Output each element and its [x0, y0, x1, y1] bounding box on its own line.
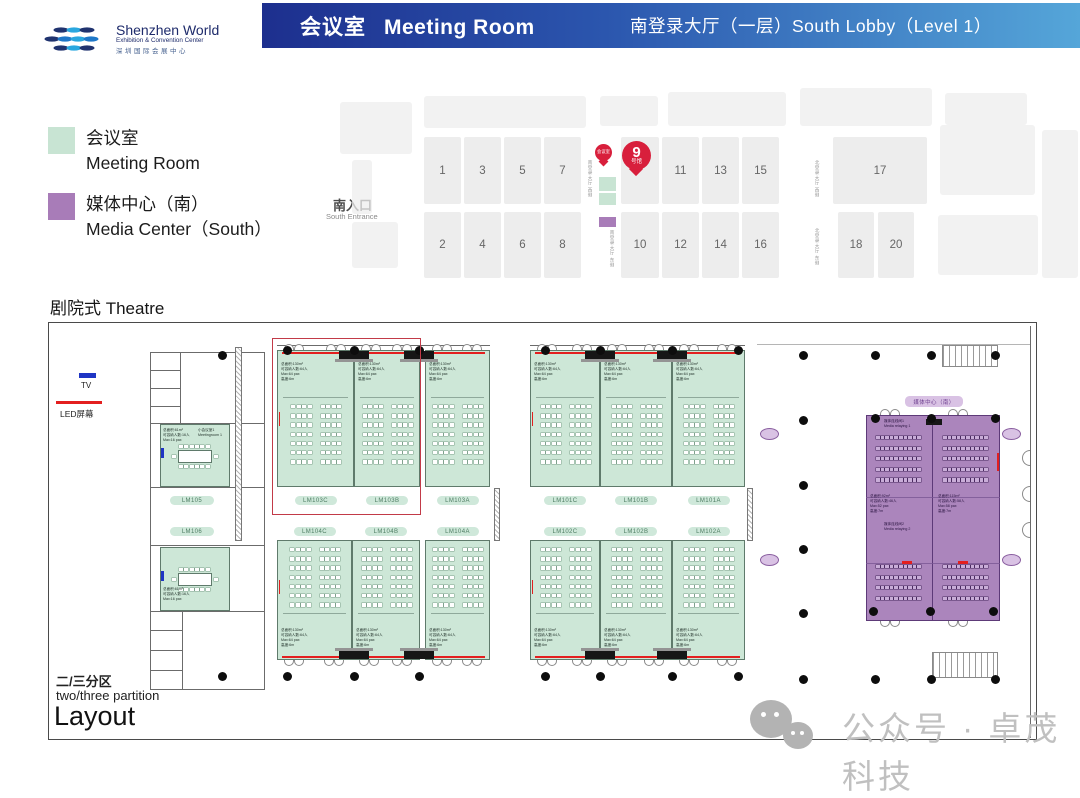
- seat: [961, 597, 965, 600]
- seat-row: [433, 566, 482, 570]
- seat: [433, 405, 437, 408]
- seat: [628, 451, 632, 454]
- column-dot: [927, 351, 936, 360]
- seat: [984, 586, 988, 589]
- seat-cluster: [362, 585, 384, 589]
- seat-cluster: [541, 576, 563, 580]
- seat-row: [876, 565, 922, 568]
- seat: [301, 603, 305, 606]
- seat-cluster: [684, 594, 706, 598]
- seat: [658, 423, 662, 426]
- seat-row: [433, 594, 482, 598]
- seat-cluster: [714, 460, 736, 464]
- seat-cluster: [714, 548, 736, 552]
- seat: [541, 414, 545, 417]
- seat-cluster: [684, 423, 706, 427]
- seat: [658, 460, 662, 463]
- tv-mark: [161, 571, 164, 581]
- seat: [725, 594, 729, 597]
- seat-cluster: [714, 603, 736, 607]
- seat-row: [541, 442, 590, 446]
- room-label-LM103A: LM103A: [437, 496, 479, 505]
- seat-row: [612, 405, 661, 409]
- seat: [690, 557, 694, 560]
- seat: [647, 594, 651, 597]
- seat: [552, 414, 556, 417]
- seat: [917, 447, 921, 450]
- seat: [433, 414, 437, 417]
- seat: [320, 603, 324, 606]
- column-dot: [991, 351, 1000, 360]
- seat: [881, 478, 885, 481]
- seat: [439, 433, 443, 436]
- seat: [433, 566, 437, 569]
- stairs: [932, 652, 998, 678]
- corridor-joint: [747, 488, 753, 541]
- seat-cluster: [290, 576, 312, 580]
- seat: [402, 566, 406, 569]
- seat: [690, 433, 694, 436]
- seat: [957, 478, 961, 481]
- seat-row: [290, 576, 339, 580]
- seat: [719, 460, 723, 463]
- seat: [881, 597, 885, 600]
- door-arc: [727, 660, 737, 666]
- seat: [541, 460, 545, 463]
- seat: [378, 566, 382, 569]
- seat: [296, 566, 300, 569]
- seat: [587, 460, 591, 463]
- seat-cluster: [612, 566, 634, 570]
- seat: [617, 433, 621, 436]
- seat-cluster: [570, 566, 592, 570]
- seat: [463, 423, 467, 426]
- seat: [652, 433, 656, 436]
- door-arc: [324, 660, 334, 666]
- door-arc: [402, 660, 412, 666]
- seat: [894, 436, 898, 439]
- seat: [468, 433, 472, 436]
- dimension-line: [606, 397, 666, 398]
- seat-cluster: [391, 557, 413, 561]
- seat: [984, 565, 988, 568]
- door-arc: [644, 344, 654, 350]
- seat: [557, 576, 561, 579]
- seat: [474, 576, 478, 579]
- seat: [474, 548, 478, 551]
- seat: [684, 557, 688, 560]
- seat: [623, 594, 627, 597]
- seat-row: [684, 423, 733, 427]
- wall: [150, 630, 182, 631]
- seat-row: [876, 576, 922, 579]
- seat: [320, 585, 324, 588]
- seat: [612, 548, 616, 551]
- seat: [913, 468, 917, 471]
- chair: [184, 568, 188, 571]
- seat: [552, 423, 556, 426]
- seat: [439, 423, 443, 426]
- seat: [623, 548, 627, 551]
- seat-row: [433, 585, 482, 589]
- column-dot: [871, 414, 880, 423]
- column-dot: [541, 346, 550, 355]
- seat: [623, 576, 627, 579]
- seat-cluster: [290, 594, 312, 598]
- seat: [587, 557, 591, 560]
- seat: [325, 548, 329, 551]
- seat-row: [684, 548, 733, 552]
- seat: [658, 451, 662, 454]
- media-spec-right: 总面积:115m²可容纳人数:58人Max:58 pax高度:7m: [938, 494, 965, 513]
- seat: [652, 442, 656, 445]
- seat: [331, 548, 335, 551]
- seat: [546, 423, 550, 426]
- seat-cluster: [612, 460, 634, 464]
- door-arc: [679, 344, 689, 350]
- seat: [468, 594, 472, 597]
- seat: [641, 414, 645, 417]
- seat: [984, 468, 988, 471]
- seat-row: [541, 594, 590, 598]
- seat-row: [612, 594, 661, 598]
- chair: [179, 568, 183, 571]
- seat: [444, 566, 448, 569]
- stage: [585, 651, 615, 659]
- seat-cluster: [570, 405, 592, 409]
- seat: [684, 585, 688, 588]
- seat: [899, 597, 903, 600]
- seat: [617, 414, 621, 417]
- seat: [961, 478, 965, 481]
- seat: [331, 557, 335, 560]
- seat: [576, 451, 580, 454]
- seat-cluster: [714, 576, 736, 580]
- seat-row: [684, 557, 733, 561]
- seat: [885, 478, 889, 481]
- seat: [684, 451, 688, 454]
- seat: [948, 597, 952, 600]
- seat-row: [612, 451, 661, 455]
- seat: [885, 586, 889, 589]
- seat: [397, 566, 401, 569]
- seat: [701, 433, 705, 436]
- seat: [378, 585, 382, 588]
- seat-row: [290, 603, 339, 607]
- seat-cluster: [714, 414, 736, 418]
- seat: [719, 603, 723, 606]
- seat: [479, 451, 483, 454]
- seat: [975, 478, 979, 481]
- seat: [876, 447, 880, 450]
- seat: [725, 423, 729, 426]
- seat: [444, 460, 448, 463]
- seat: [623, 460, 627, 463]
- seat: [952, 586, 956, 589]
- chair: [190, 465, 194, 468]
- column-dot: [734, 346, 743, 355]
- seat-row: [684, 576, 733, 580]
- seat: [463, 576, 467, 579]
- seat: [899, 457, 903, 460]
- seat: [581, 460, 585, 463]
- seat: [894, 586, 898, 589]
- seat: [552, 585, 556, 588]
- seat-cluster: [714, 451, 736, 455]
- seat: [367, 566, 371, 569]
- seat: [444, 423, 448, 426]
- column-dot: [415, 672, 424, 681]
- seat: [391, 557, 395, 560]
- seat-row: [876, 436, 922, 439]
- seat-cluster: [320, 566, 342, 570]
- seat: [719, 566, 723, 569]
- chair: [172, 455, 176, 458]
- seat: [695, 460, 699, 463]
- seat: [546, 576, 550, 579]
- seat: [719, 405, 723, 408]
- seat: [725, 460, 729, 463]
- door-marker: [1002, 554, 1021, 566]
- seat: [971, 468, 975, 471]
- seat: [463, 594, 467, 597]
- seat-cluster: [570, 594, 592, 598]
- seat: [957, 457, 961, 460]
- seat: [714, 405, 718, 408]
- seat: [652, 585, 656, 588]
- seat: [913, 478, 917, 481]
- seat-cluster: [684, 442, 706, 446]
- seat: [966, 576, 970, 579]
- seat-row: [433, 433, 482, 437]
- seat-row: [943, 468, 989, 471]
- seat: [943, 597, 947, 600]
- seat-row: [876, 597, 922, 600]
- seat: [913, 586, 917, 589]
- seat-cluster: [433, 442, 455, 446]
- seat-cluster: [570, 433, 592, 437]
- seat: [397, 585, 401, 588]
- seat-cluster: [684, 585, 706, 589]
- seat: [971, 457, 975, 460]
- column-dot: [871, 351, 880, 360]
- seat: [641, 442, 645, 445]
- seat: [881, 565, 885, 568]
- seat-cluster: [570, 442, 592, 446]
- seat: [331, 585, 335, 588]
- seat-cluster: [463, 414, 485, 418]
- seat: [479, 603, 483, 606]
- seat-cluster: [570, 557, 592, 561]
- seat: [320, 576, 324, 579]
- seat: [885, 565, 889, 568]
- seat-row: [541, 566, 590, 570]
- seat-cluster: [714, 557, 736, 561]
- seat: [450, 405, 454, 408]
- seat: [587, 576, 591, 579]
- column-dot: [799, 416, 808, 425]
- seat: [876, 478, 880, 481]
- seat: [570, 548, 574, 551]
- seat: [397, 594, 401, 597]
- seat: [474, 566, 478, 569]
- seat: [913, 436, 917, 439]
- seat: [899, 586, 903, 589]
- seat: [450, 594, 454, 597]
- seat-cluster: [612, 433, 634, 437]
- seat-row: [684, 603, 733, 607]
- seat: [652, 423, 656, 426]
- seat-row: [943, 565, 989, 568]
- dimension-line: [536, 613, 594, 614]
- seat: [695, 557, 699, 560]
- seat: [980, 436, 984, 439]
- seat: [557, 451, 561, 454]
- seat: [576, 566, 580, 569]
- plan-elements: 总面积:130m²可容纳人数:64人Max:64 pax高度:6mLM103C总…: [0, 0, 1080, 764]
- seat: [701, 594, 705, 597]
- seat-cluster: [541, 548, 563, 552]
- column-dot: [668, 346, 677, 355]
- door-arc: [689, 344, 699, 350]
- seat: [541, 405, 545, 408]
- seat-row: [612, 460, 661, 464]
- seat: [552, 603, 556, 606]
- seat-row: [541, 460, 590, 464]
- seat-cluster: [641, 423, 663, 427]
- seat: [730, 603, 734, 606]
- seat: [450, 548, 454, 551]
- seat: [617, 423, 621, 426]
- seat: [948, 468, 952, 471]
- seat-cluster: [684, 603, 706, 607]
- seat-cluster: [570, 423, 592, 427]
- seat: [647, 460, 651, 463]
- seat-row: [684, 414, 733, 418]
- seat-row: [433, 548, 482, 552]
- seat-row: [684, 566, 733, 570]
- seat: [641, 566, 645, 569]
- seat: [408, 557, 412, 560]
- seat-row: [433, 557, 482, 561]
- seat-row: [684, 405, 733, 409]
- seat-cluster: [714, 423, 736, 427]
- door-arc: [880, 409, 890, 415]
- seat: [652, 548, 656, 551]
- seat: [474, 460, 478, 463]
- seat: [917, 468, 921, 471]
- seat-cluster: [641, 548, 663, 552]
- seat: [948, 576, 952, 579]
- led-legend-mark: [56, 401, 102, 404]
- seat: [623, 585, 627, 588]
- chair: [200, 465, 204, 468]
- seat: [980, 576, 984, 579]
- door-arc: [442, 660, 452, 666]
- seat: [552, 566, 556, 569]
- seat: [628, 548, 632, 551]
- seat: [876, 586, 880, 589]
- seat: [367, 576, 371, 579]
- seat: [966, 586, 970, 589]
- seat: [546, 548, 550, 551]
- column-dot: [799, 545, 808, 554]
- chair: [184, 445, 188, 448]
- seat: [652, 594, 656, 597]
- seat-cluster: [714, 433, 736, 437]
- seat: [557, 548, 561, 551]
- seat: [894, 478, 898, 481]
- seat: [628, 460, 632, 463]
- seat-cluster: [684, 460, 706, 464]
- seat-cluster: [433, 603, 455, 607]
- seat: [980, 457, 984, 460]
- seat: [391, 566, 395, 569]
- seat: [904, 565, 908, 568]
- room-label-LM106: LM106: [170, 527, 214, 536]
- seat-cluster: [641, 433, 663, 437]
- seat-row: [541, 548, 590, 552]
- seat: [479, 557, 483, 560]
- seat: [576, 423, 580, 426]
- seat-row: [541, 405, 590, 409]
- seat: [587, 594, 591, 597]
- seat: [701, 442, 705, 445]
- seat: [628, 414, 632, 417]
- wall: [866, 563, 1000, 564]
- seat: [552, 405, 556, 408]
- seat: [885, 436, 889, 439]
- seat: [948, 586, 952, 589]
- door-arc: [1022, 450, 1030, 466]
- seat: [570, 557, 574, 560]
- seat: [576, 414, 580, 417]
- seat: [908, 478, 912, 481]
- seat: [623, 405, 627, 408]
- seat: [362, 548, 366, 551]
- seat-row: [876, 447, 922, 450]
- seat: [307, 557, 311, 560]
- seat-cluster: [391, 576, 413, 580]
- media-center-label: 媒体中心（南）: [905, 396, 963, 407]
- seat: [647, 442, 651, 445]
- seat: [881, 468, 885, 471]
- seat: [961, 468, 965, 471]
- seat: [975, 447, 979, 450]
- seat: [952, 597, 956, 600]
- seat: [725, 603, 729, 606]
- seat: [296, 594, 300, 597]
- seat: [474, 405, 478, 408]
- wall: [182, 611, 183, 690]
- seat-cluster: [290, 585, 312, 589]
- seat: [336, 548, 340, 551]
- chair: [195, 465, 199, 468]
- seat: [433, 433, 437, 436]
- seat: [479, 548, 483, 551]
- seat: [980, 447, 984, 450]
- seat: [730, 576, 734, 579]
- seat: [684, 566, 688, 569]
- seat: [652, 603, 656, 606]
- seat: [719, 451, 723, 454]
- seat: [576, 460, 580, 463]
- wall: [150, 650, 182, 651]
- seat: [952, 478, 956, 481]
- seat-cluster: [362, 594, 384, 598]
- door-arc: [294, 660, 304, 666]
- column-dot: [991, 414, 1000, 423]
